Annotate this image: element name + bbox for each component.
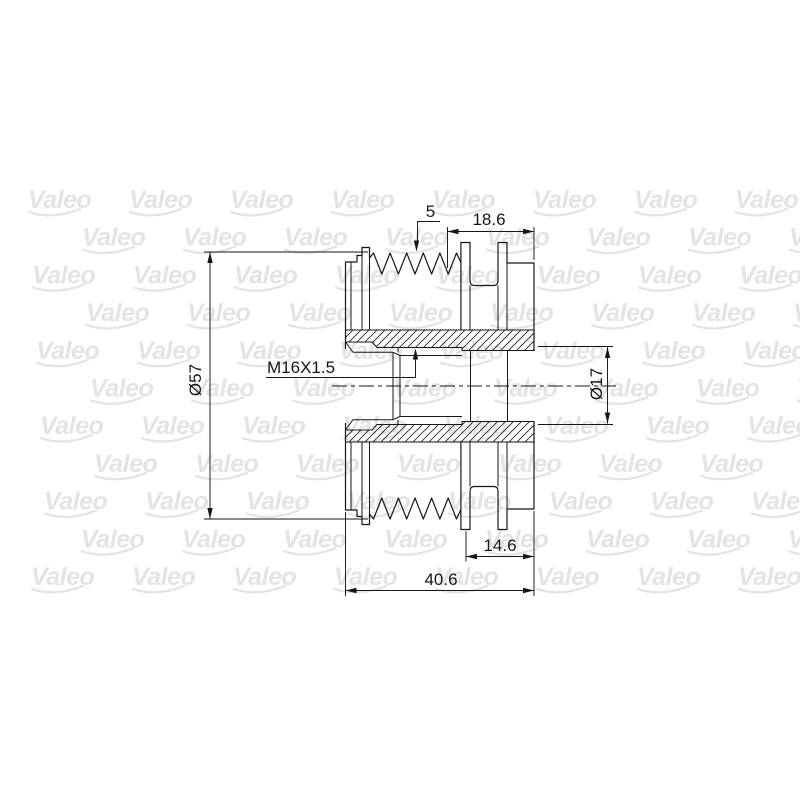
valeo-watermark: Valeo bbox=[283, 525, 347, 553]
valeo-watermark: Valeo bbox=[141, 412, 205, 440]
valeo-watermark: Valeo bbox=[751, 488, 800, 516]
dimension-label-outer-diameter: Ø57 bbox=[186, 364, 205, 396]
valeo-watermark: Valeo bbox=[86, 299, 150, 327]
valeo-watermark: Valeo bbox=[642, 337, 706, 365]
hatch-line bbox=[506, 327, 532, 353]
technical-drawing-page: ValeoValeoValeoValeoValeoValeoValeoValeo… bbox=[0, 0, 800, 800]
hatch-line bbox=[410, 419, 436, 445]
valeo-watermark: Valeo bbox=[536, 563, 600, 591]
valeo-watermark: Valeo bbox=[44, 488, 108, 516]
valeo-watermark: Valeo bbox=[650, 488, 714, 516]
valeo-watermark: Valeo bbox=[688, 224, 752, 252]
valeo-watermark: Valeo bbox=[31, 563, 95, 591]
valeo-watermark: Valeo bbox=[397, 450, 461, 478]
valeo-watermark: Valeo bbox=[586, 525, 650, 553]
valeo-watermark: Valeo bbox=[233, 563, 297, 591]
clutch-rim-top bbox=[461, 243, 534, 351]
valeo-watermark: Valeo bbox=[533, 186, 597, 214]
valeo-watermark: Valeo bbox=[490, 299, 554, 327]
valeo-watermark: Valeo bbox=[133, 261, 197, 289]
valeo-watermark: Valeo bbox=[145, 488, 209, 516]
valeo-watermark: Valeo bbox=[90, 375, 154, 403]
valeo-watermark: Valeo bbox=[335, 261, 399, 289]
valeo-watermark: Valeo bbox=[545, 412, 609, 440]
valeo-watermark: Valeo bbox=[40, 412, 104, 440]
valeo-watermark: Valeo bbox=[32, 261, 96, 289]
valeo-watermark: Valeo bbox=[182, 525, 246, 553]
valeo-watermark: Valeo bbox=[82, 224, 146, 252]
valeo-watermark: Valeo bbox=[634, 186, 698, 214]
valeo-watermark: Valeo bbox=[789, 224, 800, 252]
valeo-watermark: Valeo bbox=[384, 525, 448, 553]
valeo-watermark: Valeo bbox=[735, 186, 799, 214]
valeo-watermark: Valeo bbox=[234, 261, 298, 289]
valeo-watermark: Valeo bbox=[494, 375, 558, 403]
valeo-watermark-layer: ValeoValeoValeoValeoValeoValeoValeoValeo… bbox=[28, 186, 800, 592]
valeo-watermark: Valeo bbox=[284, 224, 348, 252]
hatch-line bbox=[514, 419, 540, 445]
valeo-watermark: Valeo bbox=[587, 224, 651, 252]
valeo-watermark: Valeo bbox=[292, 375, 356, 403]
valeo-watermark: Valeo bbox=[541, 337, 605, 365]
valeo-watermark: Valeo bbox=[549, 488, 613, 516]
dimension-label-bore-diameter: Ø17 bbox=[587, 368, 606, 400]
valeo-watermark: Valeo bbox=[94, 450, 158, 478]
valeo-watermark: Valeo bbox=[793, 299, 800, 327]
valeo-watermark: Valeo bbox=[28, 186, 92, 214]
dimension-label-front-section-width: 18.6 bbox=[472, 210, 505, 229]
valeo-watermark: Valeo bbox=[230, 186, 294, 214]
dimension-label-overall-width: 40.6 bbox=[424, 570, 457, 589]
valeo-watermark: Valeo bbox=[132, 563, 196, 591]
technical-drawing-canvas: ValeoValeoValeoValeoValeoValeoValeoValeo… bbox=[0, 0, 800, 800]
valeo-watermark: Valeo bbox=[700, 450, 764, 478]
valeo-watermark: Valeo bbox=[389, 299, 453, 327]
valeo-watermark: Valeo bbox=[638, 261, 702, 289]
dimension-label-hub-width: 14.6 bbox=[483, 536, 516, 555]
valeo-watermark: Valeo bbox=[331, 186, 395, 214]
hatch-line bbox=[506, 419, 532, 445]
valeo-watermark: Valeo bbox=[183, 224, 247, 252]
valeo-watermark: Valeo bbox=[498, 450, 562, 478]
valeo-watermark: Valeo bbox=[692, 299, 756, 327]
valeo-watermark: Valeo bbox=[36, 337, 100, 365]
valeo-watermark: Valeo bbox=[334, 563, 398, 591]
valeo-watermark: Valeo bbox=[687, 525, 751, 553]
valeo-watermark: Valeo bbox=[187, 299, 251, 327]
valeo-watermark: Valeo bbox=[747, 412, 800, 440]
valeo-watermark: Valeo bbox=[788, 525, 800, 553]
hatch-line bbox=[514, 327, 540, 353]
dimension-label-rib-count: 5 bbox=[426, 202, 435, 221]
valeo-watermark: Valeo bbox=[599, 450, 663, 478]
valeo-watermark: Valeo bbox=[195, 450, 259, 478]
hatch-line bbox=[410, 327, 436, 353]
valeo-watermark: Valeo bbox=[242, 412, 306, 440]
valeo-watermark: Valeo bbox=[591, 299, 655, 327]
dimension-label-thread-spec: M16X1.5 bbox=[267, 358, 335, 377]
valeo-watermark: Valeo bbox=[81, 525, 145, 553]
valeo-watermark: Valeo bbox=[137, 337, 201, 365]
valeo-watermark: Valeo bbox=[129, 186, 193, 214]
valeo-watermark: Valeo bbox=[288, 299, 352, 327]
hatch-line bbox=[418, 419, 444, 445]
valeo-watermark: Valeo bbox=[637, 563, 701, 591]
valeo-watermark: Valeo bbox=[246, 488, 310, 516]
valeo-watermark: Valeo bbox=[296, 450, 360, 478]
hatch-line bbox=[402, 327, 428, 353]
valeo-watermark: Valeo bbox=[393, 375, 457, 403]
valeo-watermark: Valeo bbox=[537, 261, 601, 289]
valeo-watermark: Valeo bbox=[696, 375, 760, 403]
valeo-watermark: Valeo bbox=[646, 412, 710, 440]
valeo-watermark: Valeo bbox=[448, 488, 512, 516]
